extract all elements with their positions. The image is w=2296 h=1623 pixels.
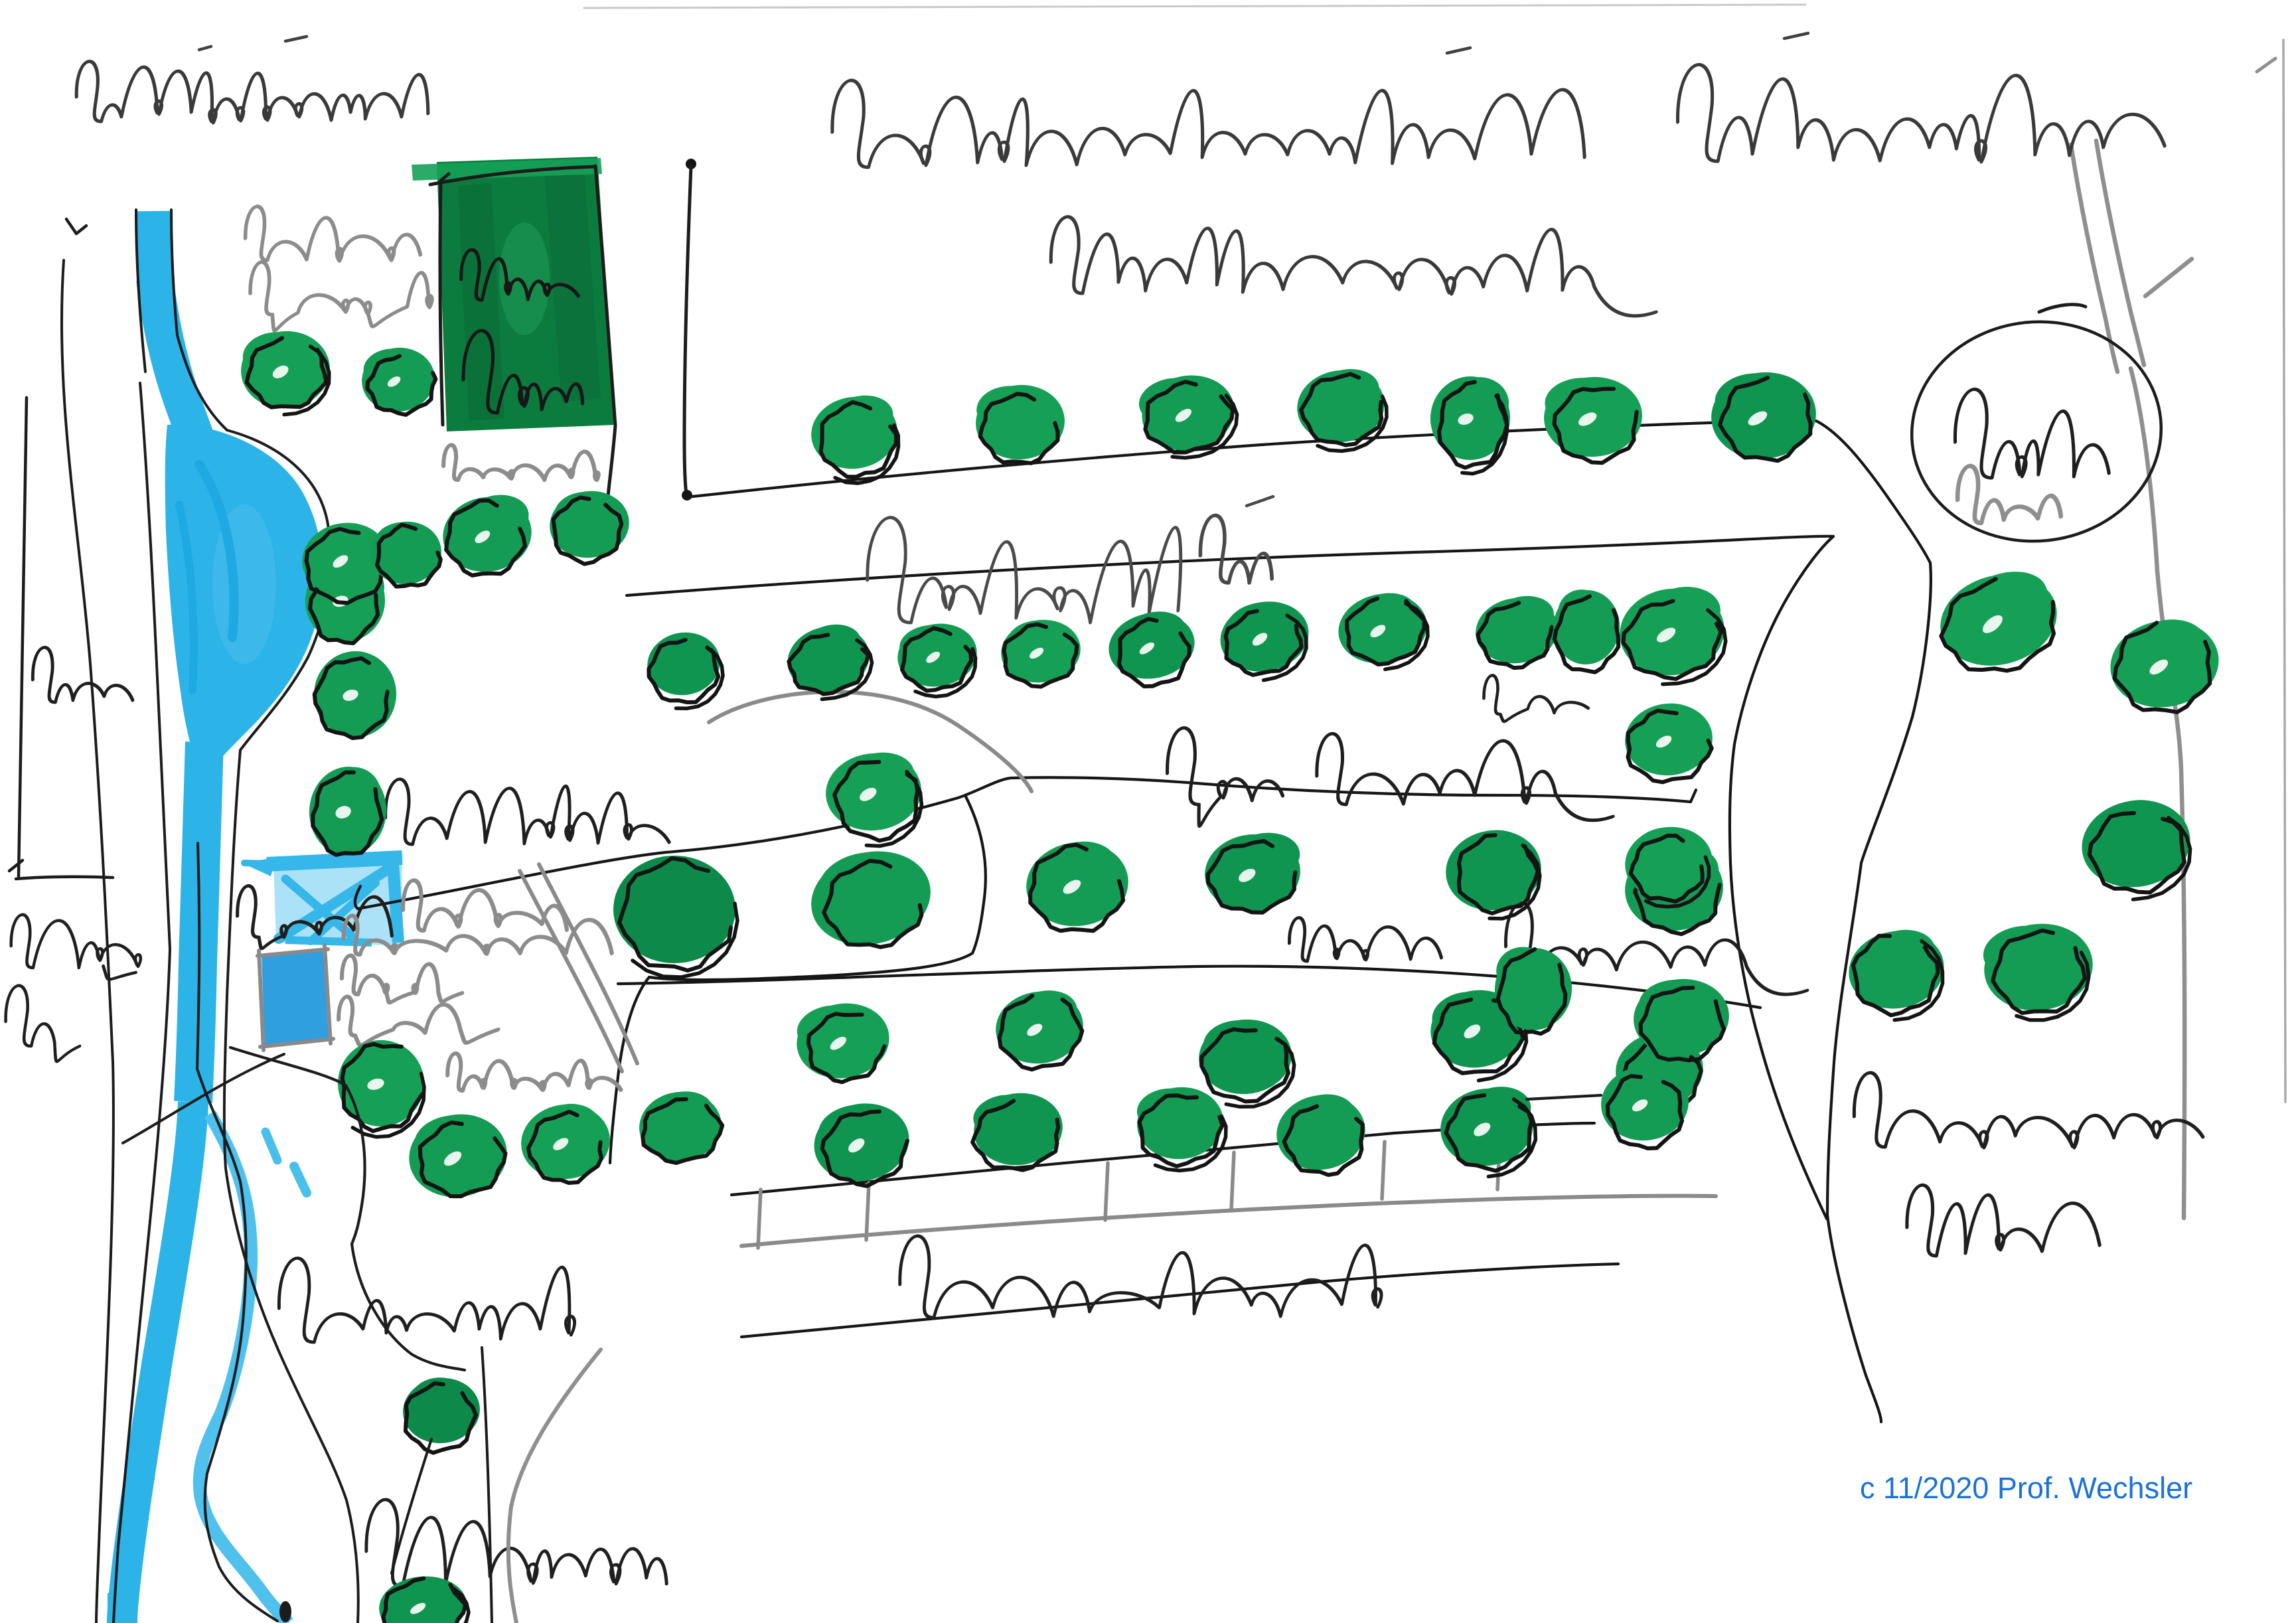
- svg-text:c 11/2020 Prof. Wechsler: c 11/2020 Prof. Wechsler: [1860, 1471, 2192, 1505]
